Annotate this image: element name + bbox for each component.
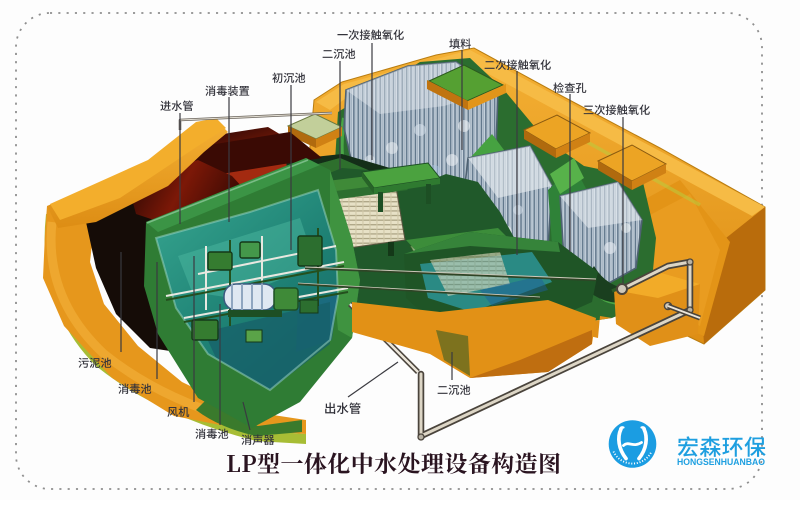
svg-text:HONGSENHUANBAO: HONGSENHUANBAO — [677, 456, 765, 467]
